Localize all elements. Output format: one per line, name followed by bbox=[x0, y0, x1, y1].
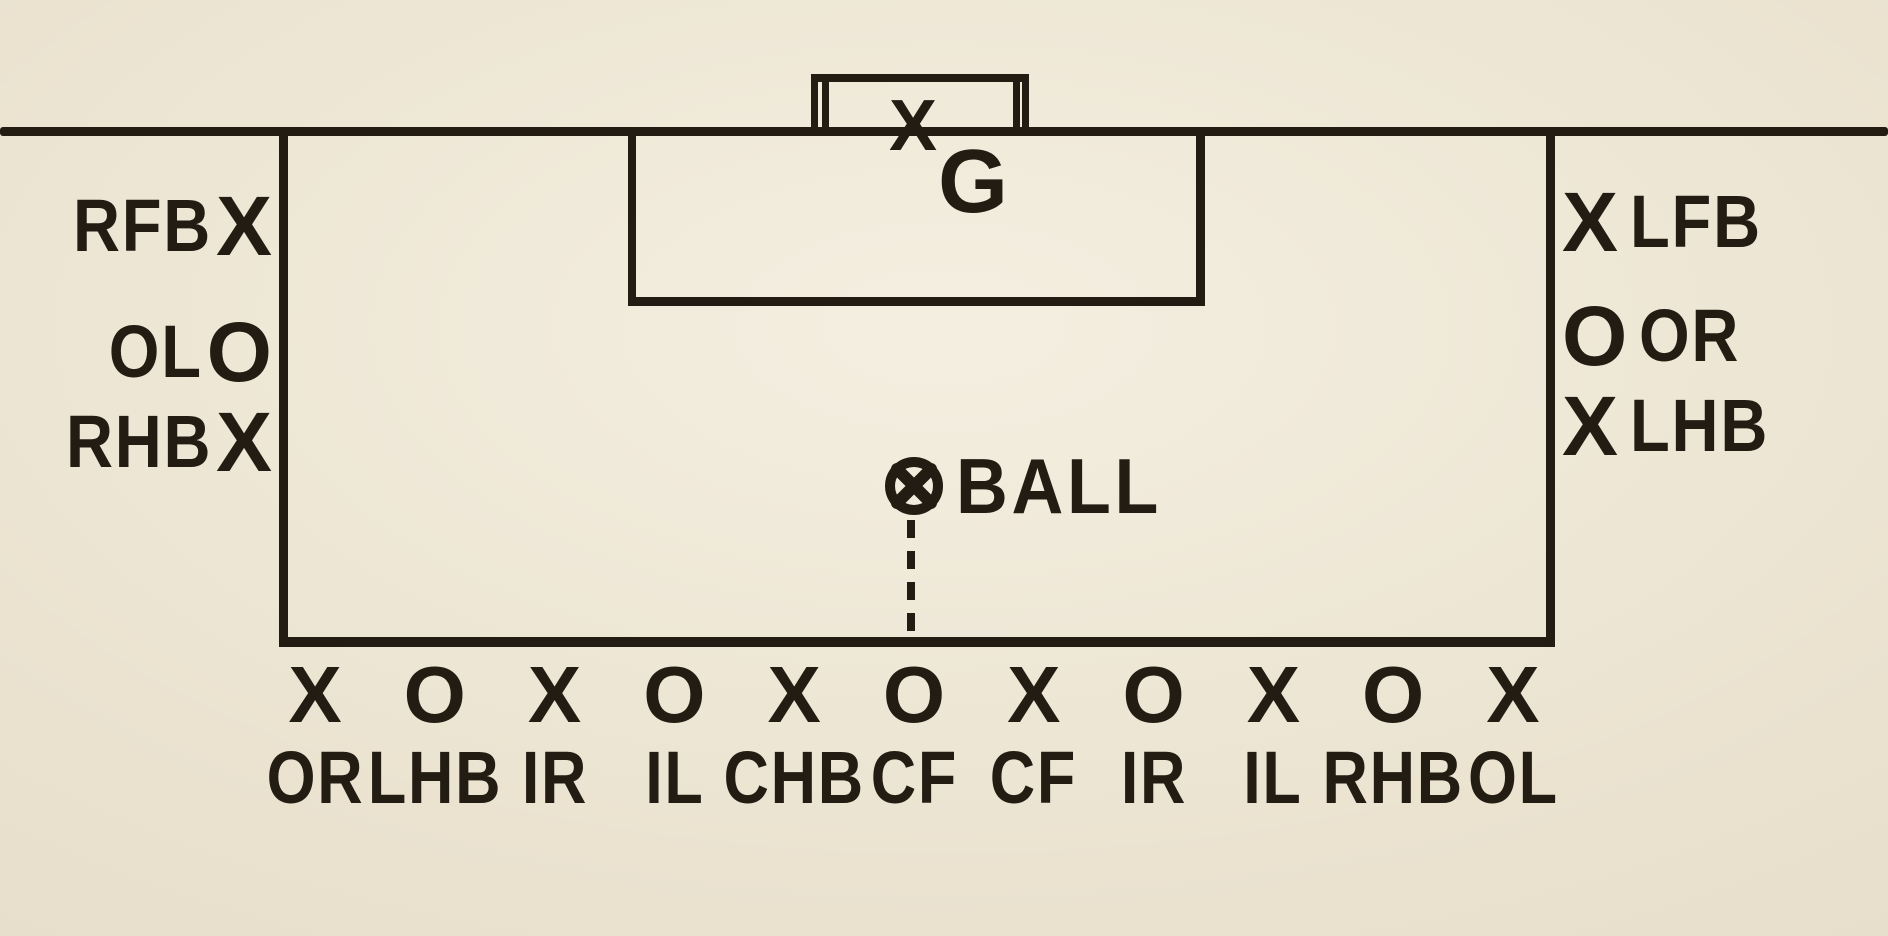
player-marker: X bbox=[1007, 652, 1060, 738]
goal-area-left-edge bbox=[628, 131, 636, 306]
player-label: RHB bbox=[1322, 738, 1463, 818]
player-row: X LHB bbox=[1562, 381, 1888, 471]
player-label: RFB bbox=[73, 189, 212, 263]
goal-post-left-outer bbox=[811, 74, 818, 131]
player-marker: X bbox=[216, 184, 272, 268]
goal-area-bottom-edge bbox=[628, 297, 1205, 306]
goalkeeper-label: G bbox=[938, 138, 1008, 226]
player-label: LFB bbox=[1630, 185, 1762, 259]
penalty-area-bottom-edge bbox=[279, 637, 1555, 647]
player-label: CHB bbox=[724, 738, 865, 818]
player-label: OL bbox=[1468, 738, 1559, 818]
player-marker: X bbox=[1486, 652, 1539, 738]
player-item: O RHB bbox=[1346, 652, 1440, 818]
goal-crossbar bbox=[811, 74, 1029, 82]
player-item: O CF bbox=[867, 652, 961, 818]
player-label: RHB bbox=[66, 405, 212, 479]
left-players-column: RFB X OL O RHB X bbox=[0, 181, 272, 487]
goal-post-left-inner bbox=[822, 74, 829, 131]
goalkeeper-marker: X bbox=[889, 91, 937, 161]
player-label: IR bbox=[521, 738, 587, 818]
goal-area-right-edge bbox=[1196, 131, 1205, 306]
player-label: CF bbox=[990, 738, 1077, 818]
player-item: O IR bbox=[1107, 652, 1201, 818]
player-label: CF bbox=[870, 738, 957, 818]
ball-label: BALL bbox=[956, 447, 1162, 525]
goal-post-right-outer bbox=[1022, 74, 1029, 131]
player-item: X OR bbox=[268, 652, 362, 818]
player-marker: X bbox=[216, 400, 272, 484]
player-marker: X bbox=[1562, 384, 1618, 468]
player-item: X IL bbox=[1226, 652, 1320, 818]
player-label: LHB bbox=[1630, 389, 1769, 463]
ball-icon bbox=[882, 454, 946, 518]
player-marker: X bbox=[768, 652, 821, 738]
player-marker: O bbox=[404, 652, 466, 738]
player-item: X IR bbox=[508, 652, 602, 818]
goal-post-right-inner bbox=[1013, 74, 1020, 131]
player-item: X CHB bbox=[747, 652, 841, 818]
player-marker: X bbox=[1562, 180, 1618, 264]
diagram-page: X G RFB X OL O RHB X X LFB bbox=[0, 0, 1888, 936]
player-marker: O bbox=[1562, 294, 1627, 378]
player-marker: O bbox=[1122, 652, 1184, 738]
player-item: O LHB bbox=[388, 652, 482, 818]
player-label: IR bbox=[1120, 738, 1186, 818]
player-label: IL bbox=[1244, 738, 1303, 818]
player-marker: X bbox=[288, 652, 341, 738]
player-row: X LFB bbox=[1562, 177, 1888, 267]
ball-dashed-line bbox=[907, 520, 915, 642]
player-label: IL bbox=[645, 738, 704, 818]
player-marker: O bbox=[883, 652, 945, 738]
player-item: O IL bbox=[627, 652, 721, 818]
player-row: RFB X bbox=[0, 181, 272, 271]
player-label: LHB bbox=[368, 738, 502, 818]
penalty-area-right-edge bbox=[1546, 131, 1555, 647]
player-marker: O bbox=[643, 652, 705, 738]
player-marker: X bbox=[1247, 652, 1300, 738]
player-label: OR bbox=[266, 738, 364, 818]
player-item: X CF bbox=[987, 652, 1081, 818]
penalty-area-left-edge bbox=[279, 131, 288, 647]
player-label: OR bbox=[1639, 299, 1740, 373]
goal-line-players-row: X OR O LHB X IR O IL X CHB bbox=[268, 652, 1560, 818]
player-row: OL O bbox=[0, 307, 272, 397]
player-item: X OL bbox=[1466, 652, 1560, 818]
player-marker: O bbox=[1362, 652, 1424, 738]
player-marker: O bbox=[207, 310, 272, 394]
player-marker: X bbox=[528, 652, 581, 738]
player-row: O OR bbox=[1562, 291, 1888, 381]
player-row: RHB X bbox=[0, 397, 272, 487]
player-label: OL bbox=[109, 315, 203, 389]
right-players-column: X LFB O OR X LHB bbox=[1562, 177, 1888, 471]
